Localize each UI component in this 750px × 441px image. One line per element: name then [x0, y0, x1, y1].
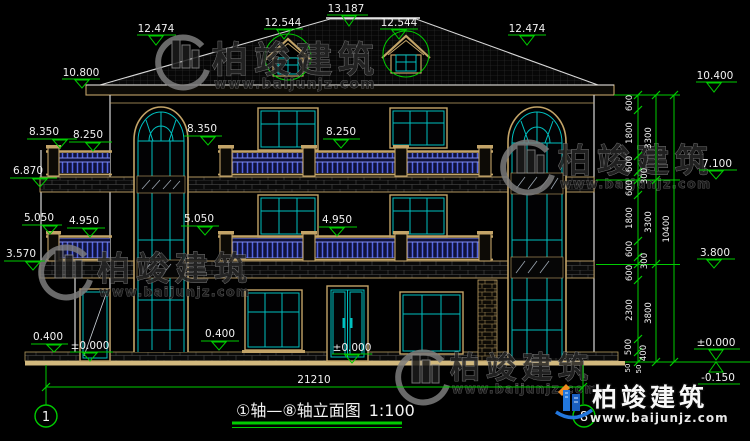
- chain-dim: 600: [625, 95, 635, 111]
- dim-text: 5.050: [184, 213, 214, 225]
- chain-dim: 300: [640, 253, 650, 269]
- elevation-mark-eave-right: 10.400: [696, 70, 737, 92]
- dim-text: 8.350: [29, 126, 59, 138]
- dim-text: 4.950: [322, 214, 352, 226]
- elevation-mark-roof-right: 12.474: [508, 23, 546, 45]
- site-logo-url: www.baijunjz.com: [590, 411, 729, 425]
- dim-text: 6.870: [13, 165, 43, 177]
- dim-text: 8.350: [187, 123, 217, 135]
- chain-dim: 1800: [625, 207, 635, 229]
- watermark-brand: 柏竣建筑: [212, 40, 380, 81]
- elevation-mark-c-4950: 4.950: [319, 214, 357, 236]
- window-gf-left: [242, 290, 305, 353]
- dim-text: 0.400: [33, 331, 63, 343]
- overall-width-text: 21210: [297, 374, 330, 386]
- dim-text: 12.544: [381, 17, 418, 29]
- watermark-brand: 柏竣建筑: [450, 351, 594, 386]
- chain-dim: 600: [625, 180, 635, 196]
- chain-dim: 400: [639, 345, 649, 361]
- dim-text: 3.800: [700, 247, 730, 259]
- chain-dim: 2300: [625, 299, 635, 321]
- chain-dim: 50: [635, 365, 643, 374]
- spandrel-panel: [137, 176, 185, 193]
- cad-canvas: 柏竣建筑 www.baijunjz.com 柏竣建筑 www.baijunjz.…: [0, 0, 750, 441]
- title-scale: 1:100: [369, 401, 415, 420]
- watermark-url: www.baijunjz.com: [99, 284, 251, 299]
- elevation-mark-right-3800: 3.800: [697, 247, 735, 268]
- window-2f-right: [390, 195, 447, 237]
- dim-text: 12.474: [138, 23, 175, 35]
- dim-text: ±0.000: [697, 337, 736, 349]
- dim-text: 10.800: [63, 67, 100, 79]
- title-text: ①轴—⑧轴立面图1:100: [236, 401, 415, 420]
- elevation-mark-left-0400: 0.400: [31, 331, 68, 352]
- chain-dim: 3800: [644, 302, 654, 324]
- chain-dim: 50: [624, 364, 632, 373]
- dim-text: ±0.000: [333, 342, 372, 354]
- elevation-mark-left-8350: 8.350: [27, 126, 77, 148]
- site-logo-brand: 柏竣建筑: [592, 383, 708, 412]
- dim-text: ±0.000: [71, 340, 110, 352]
- elevation-mark-left-5050: 5.050: [22, 212, 62, 234]
- dim-text: 8.250: [326, 126, 356, 138]
- elevation-mark-right-zero: ±0.000: [694, 337, 740, 372]
- chain-dim: 3300: [644, 211, 654, 233]
- chain-dim: 1800: [625, 122, 635, 144]
- chain-dim: 3300: [644, 127, 654, 149]
- watermark-url: www.baijunjz.com: [452, 382, 599, 396]
- elevation-mark-left-8250: 8.250: [69, 129, 112, 151]
- title-axis-range: ①轴—⑧轴立面图: [236, 401, 361, 420]
- dim-text: 4.950: [69, 215, 99, 227]
- window-3f-left: [258, 108, 318, 150]
- axis-bubble-left: 1: [35, 405, 57, 427]
- window-3f-right: [390, 108, 447, 148]
- chain-dim: 600: [625, 241, 635, 257]
- dim-text: 13.187: [328, 3, 365, 15]
- axis-number: 1: [42, 410, 50, 425]
- chain-dim: 300: [640, 168, 650, 184]
- window-gf-right: [400, 292, 463, 354]
- elevation-mark-c-8350: 8.350: [184, 123, 222, 145]
- dim-text: 3.570: [6, 248, 36, 260]
- elevation-drawing: 柏竣建筑 www.baijunjz.com 柏竣建筑 www.baijunjz.…: [0, 0, 750, 441]
- dim-text: 7.100: [702, 158, 732, 170]
- watermark-brand: 柏竣建筑: [97, 249, 253, 288]
- dim-text: 10.400: [697, 70, 734, 82]
- drawing-title: ①轴—⑧轴立面图1:100: [232, 401, 415, 428]
- watermark: 柏竣建筑 www.baijunjz.com: [41, 247, 253, 299]
- chain-dim: 600: [625, 156, 635, 172]
- chain-dim: 500: [624, 339, 634, 355]
- dim-text: 12.544: [265, 17, 302, 29]
- dim-text: 8.250: [73, 129, 103, 141]
- arched-stairwell-window-left: [134, 107, 188, 352]
- window-2f-left: [258, 195, 318, 237]
- spandrel-panel: [511, 257, 563, 278]
- watermark-url: www.baijunjz.com: [214, 76, 376, 92]
- dim-text: 12.474: [509, 23, 546, 35]
- elevation-mark-c-8250: 8.250: [323, 126, 360, 148]
- elevation-mark-c-0400: 0.400: [201, 328, 239, 350]
- watermark-url: www.baijunjz.com: [560, 176, 712, 191]
- chain-dim: 600: [625, 265, 635, 281]
- dim-text: 0.400: [205, 328, 235, 340]
- elevation-mark-left-4950: 4.950: [67, 215, 105, 237]
- chain-dim: 10400: [662, 215, 672, 242]
- stone-pilaster: [478, 280, 497, 361]
- dimension-chain-right: 600 1800 600 300 600 1800 600 300 600 23…: [596, 91, 750, 373]
- dim-text: 5.050: [24, 212, 54, 224]
